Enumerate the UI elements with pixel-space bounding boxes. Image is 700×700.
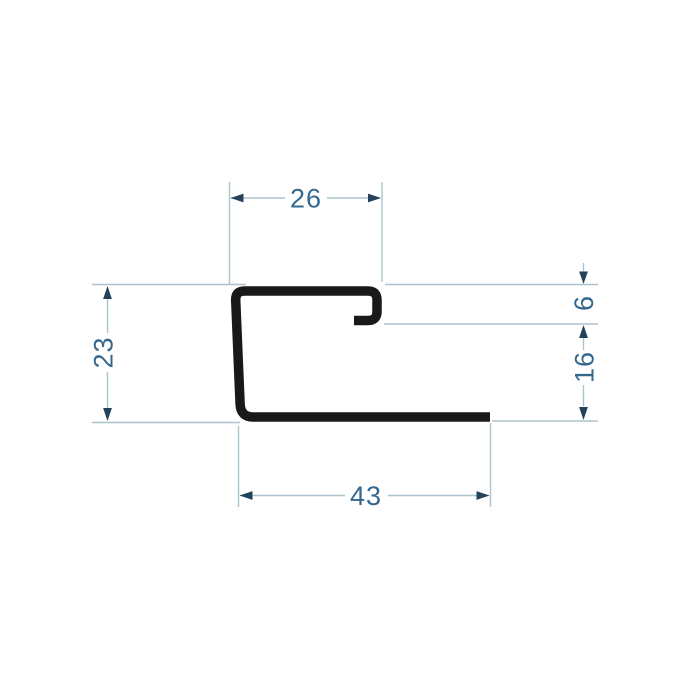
dim-right-side: 6 16 (384, 263, 599, 421)
dim-left-height-label: 23 (88, 336, 118, 368)
dim-right-opening-label: 16 (569, 351, 599, 383)
dim-left-height: 23 (88, 285, 246, 423)
arrow-up-icon (103, 286, 112, 299)
arrow-down-icon (579, 272, 588, 285)
profile-dimension-drawing: 26 23 6 16 (0, 0, 700, 700)
arrow-up-icon (579, 325, 588, 338)
dim-bottom-width: 43 (239, 423, 491, 511)
dim-hook-depth-label: 6 (569, 295, 599, 311)
dim-top-width-label: 26 (290, 184, 322, 214)
dim-top-width: 26 (230, 182, 383, 285)
drawing-page: 26 23 6 16 (0, 0, 700, 700)
profile-outline (236, 291, 490, 417)
arrow-right-icon (368, 194, 381, 203)
arrow-left-icon (231, 194, 244, 203)
arrow-down-icon (103, 408, 112, 421)
dim-bottom-width-label: 43 (350, 481, 382, 511)
arrow-left-icon (240, 491, 253, 500)
arrow-down-icon (579, 407, 588, 420)
arrow-right-icon (477, 491, 490, 500)
